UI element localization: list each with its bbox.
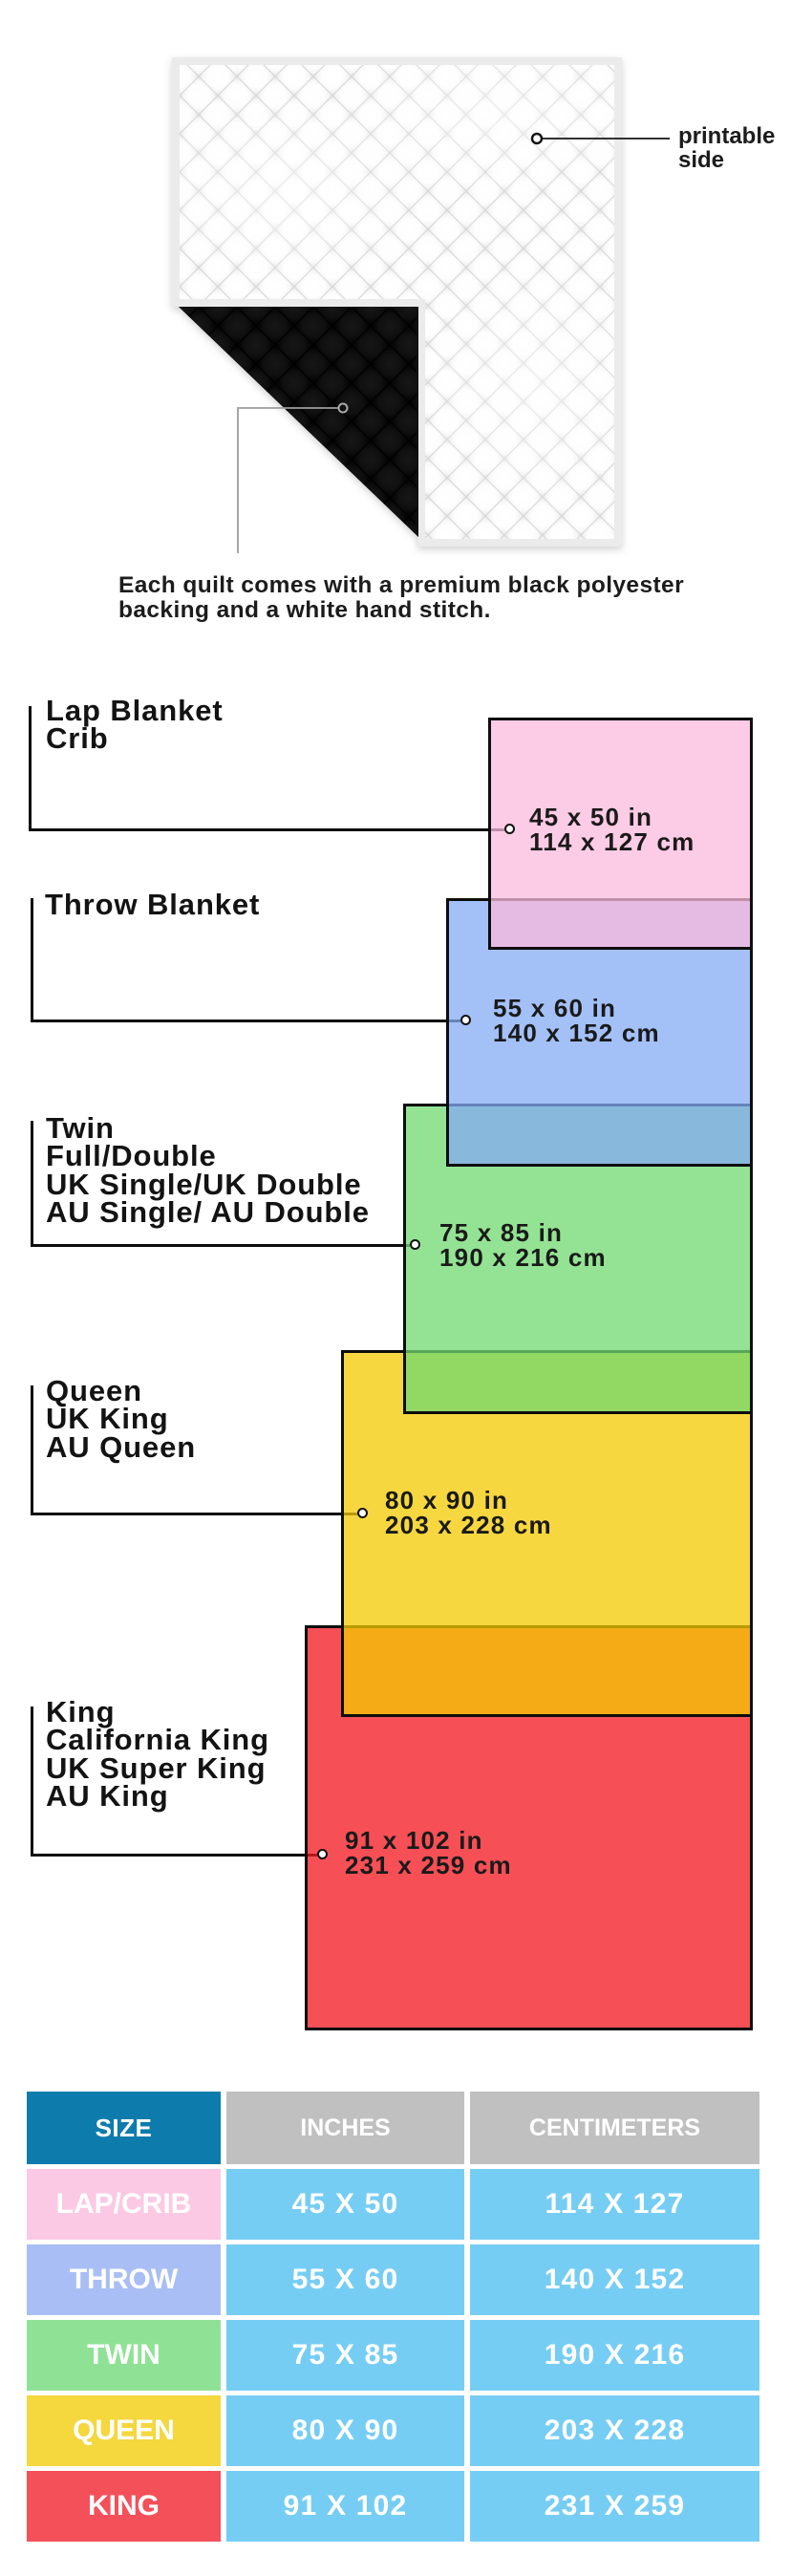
svg-text:printable: printable	[678, 123, 775, 149]
svg-text:side: side	[678, 147, 724, 173]
svg-text:backing and a white hand stitc: backing and a white hand stitch.	[118, 597, 491, 623]
svg-text:Each quilt comes with a premiu: Each quilt comes with a premium black po…	[118, 572, 684, 598]
